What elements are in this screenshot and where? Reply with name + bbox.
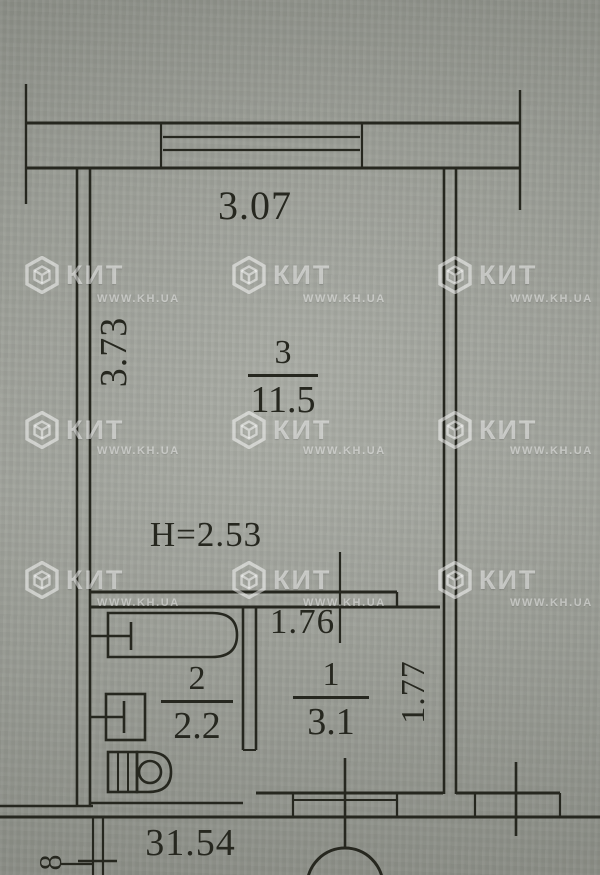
- toilet: [108, 752, 171, 792]
- window: [161, 123, 362, 168]
- kit-watermark: КИТ: [438, 561, 537, 599]
- kit-watermark: КИТ: [25, 256, 124, 294]
- kit-url-text: WWW.KH.UA: [510, 598, 593, 609]
- room-number: 1: [323, 658, 340, 692]
- kit-watermark: КИТ: [232, 256, 331, 294]
- kit-url-text: WWW.KH.UA: [303, 446, 386, 457]
- bathtub: [90, 613, 237, 657]
- room-area: 11.5: [250, 381, 315, 419]
- room-area: 2.2: [173, 707, 221, 745]
- room-2-label: 2 2.2: [149, 662, 245, 745]
- kit-url-text: WWW.KH.UA: [97, 446, 180, 457]
- kit-brand-text: КИТ: [66, 417, 124, 444]
- kit-hexagon-icon: [25, 411, 59, 449]
- floor-plan-page: КИТ КИТ КИТ WWW.KH.UA WWW.KH.UA WWW.KH.U…: [0, 0, 600, 875]
- kit-hexagon-icon: [25, 256, 59, 294]
- kit-url-text: WWW.KH.UA: [510, 294, 593, 305]
- room-number: 3: [275, 336, 292, 370]
- sink: [90, 694, 145, 740]
- kit-hexagon-icon: [25, 561, 59, 599]
- dimension-edge-partial: 8: [30, 842, 70, 875]
- dimension-room1-depth: 1.77: [394, 637, 434, 747]
- fraction-line: [248, 374, 318, 377]
- kit-brand-text: КИТ: [66, 262, 124, 289]
- kit-hexagon-icon: [438, 256, 472, 294]
- dimension-window-wall-width: 3.07: [190, 186, 320, 226]
- dimension-room3-depth: 3.73: [93, 292, 135, 412]
- kit-watermark: КИТ: [438, 411, 537, 449]
- apartment-number: 62: [324, 866, 364, 875]
- room-area: 3.1: [307, 703, 355, 741]
- kit-brand-text: КИТ: [66, 567, 124, 594]
- kit-watermark: КИТ: [25, 411, 124, 449]
- kit-url-text: WWW.KH.UA: [303, 294, 386, 305]
- kit-hexagon-icon: [438, 561, 472, 599]
- kit-brand-text: КИТ: [479, 417, 537, 444]
- room-3-label: 3 11.5: [233, 336, 333, 419]
- kit-brand-text: КИТ: [273, 567, 331, 594]
- kit-brand-text: КИТ: [479, 262, 537, 289]
- dimension-room1-width: 1.76: [250, 604, 355, 639]
- room-1-label: 1 3.1: [283, 658, 379, 741]
- kit-hexagon-icon: [438, 411, 472, 449]
- kit-watermark: КИТ: [232, 561, 331, 599]
- fraction-line: [293, 696, 369, 699]
- dimension-building-length: 31.54: [118, 824, 263, 862]
- kit-hexagon-icon: [232, 561, 266, 599]
- kit-watermark: КИТ: [25, 561, 124, 599]
- kit-url-text: WWW.KH.UA: [510, 446, 593, 457]
- room-number: 2: [189, 662, 206, 696]
- kit-watermark: КИТ: [438, 256, 537, 294]
- kit-brand-text: КИТ: [273, 262, 331, 289]
- top-exterior-wall: [26, 123, 520, 168]
- fraction-line: [161, 700, 233, 703]
- ceiling-height-label: H=2.53: [136, 517, 276, 552]
- kit-url-text: WWW.KH.UA: [97, 598, 180, 609]
- kit-hexagon-icon: [232, 256, 266, 294]
- kit-brand-text: КИТ: [479, 567, 537, 594]
